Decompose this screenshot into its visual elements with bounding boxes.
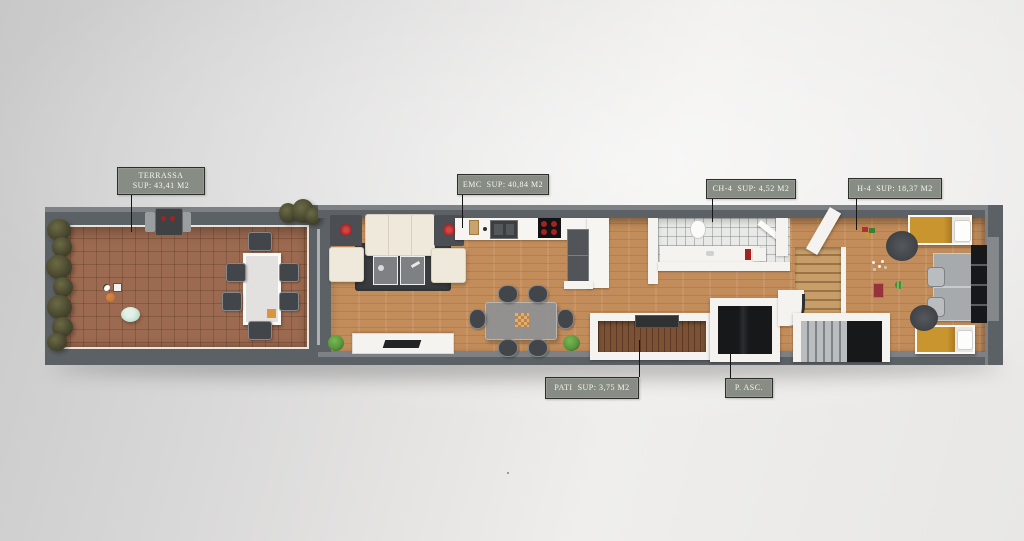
outdoor-chair xyxy=(248,232,272,251)
label-ch4-text: CH-4 SUP: 4,52 M2 xyxy=(713,184,790,194)
outdoor-chair xyxy=(248,321,272,340)
bathroom-appliance xyxy=(753,248,766,261)
induction-cooktop xyxy=(538,218,561,238)
label-terrassa-name: TERRASSA xyxy=(139,171,184,181)
bbq-side-shelf xyxy=(145,212,155,232)
sink-basin xyxy=(506,224,514,235)
hedge-plant xyxy=(53,277,73,297)
tv-set xyxy=(383,340,422,348)
hedge-plant xyxy=(46,255,72,279)
hedge-plant xyxy=(52,237,72,257)
toy-chest xyxy=(873,283,884,298)
label-pati-text: PATI SUP: 3,75 M2 xyxy=(554,383,629,393)
dining-chair xyxy=(498,285,518,303)
shelf-slit xyxy=(971,304,987,306)
label-h4-text: H-4 SUP: 18,37 M2 xyxy=(857,184,932,194)
round-rug xyxy=(910,305,938,331)
bedroom-partition-wall xyxy=(776,218,788,256)
label-h4: H-4 SUP: 18,37 M2 xyxy=(848,178,942,199)
dining-chair xyxy=(498,339,518,357)
bed-top xyxy=(908,215,972,245)
leader-line-ch4 xyxy=(712,196,713,222)
leader-line-pati xyxy=(639,340,640,377)
basketball xyxy=(106,293,115,302)
coffee-table-dish xyxy=(378,265,384,271)
stairs-down xyxy=(801,321,847,362)
round-rug xyxy=(886,231,918,261)
toy-piece xyxy=(881,260,884,263)
toilet xyxy=(690,220,706,239)
label-ch4: CH-4 SUP: 4,52 M2 xyxy=(706,179,796,199)
coffee-table-remote xyxy=(411,261,420,268)
desk-chair xyxy=(927,267,945,287)
dining-chair xyxy=(557,309,574,329)
toy-piece xyxy=(872,261,875,264)
label-terrassa: TERRASSA SUP: 43,41 M2 xyxy=(117,167,205,195)
right-wall-inset xyxy=(987,237,999,321)
coffee-table xyxy=(400,256,425,285)
ac-unit xyxy=(635,315,679,328)
bed-pillow xyxy=(954,220,971,242)
dining-chair xyxy=(528,339,548,357)
leader-line-emc xyxy=(462,192,463,228)
leader-line-terrassa xyxy=(131,192,132,232)
stair-void xyxy=(847,321,882,362)
toy-piece xyxy=(878,265,881,268)
outdoor-chair xyxy=(279,292,299,311)
outdoor-chair xyxy=(279,263,299,282)
counter-ledge xyxy=(564,281,593,289)
toy-ball xyxy=(895,281,903,289)
fridge-lower xyxy=(567,255,589,282)
leader-line-h4 xyxy=(856,196,857,230)
sofa-armchair-left xyxy=(329,247,364,282)
side-table-left xyxy=(330,215,362,246)
label-pati: PATI SUP: 3,75 M2 xyxy=(545,377,639,399)
bbq-burner xyxy=(161,216,166,221)
hall-partition-wall xyxy=(648,218,658,284)
red-flower-bowl xyxy=(340,224,352,236)
cutting-board xyxy=(469,220,479,235)
label-pasc: P. ASC. xyxy=(725,378,773,398)
cooktop-burner xyxy=(541,221,547,227)
outdoor-dining-table xyxy=(243,253,281,325)
sofa-three-seat xyxy=(365,214,435,256)
table-centerpiece xyxy=(515,313,529,327)
dining-chair xyxy=(528,285,548,303)
apartment-floor-plan xyxy=(45,205,1003,365)
sofa-cushion-seam xyxy=(388,215,389,255)
fridge-upper xyxy=(567,229,589,256)
hedge-plant xyxy=(47,333,67,351)
leader-line-pasc xyxy=(730,352,731,378)
cooktop-burner xyxy=(541,229,547,235)
red-towel xyxy=(745,249,751,260)
bathroom-bottom-wall xyxy=(658,262,790,271)
soccer-ball xyxy=(103,284,110,291)
label-emc-text: EMC SUP: 40,84 M2 xyxy=(463,180,543,190)
toy-piece xyxy=(884,266,887,269)
label-emc: EMC SUP: 40,84 M2 xyxy=(457,174,549,195)
coffee-table xyxy=(373,256,398,285)
toy-block xyxy=(862,227,868,232)
shelf-slit xyxy=(971,264,987,266)
toy-cube xyxy=(113,283,122,292)
sofa-armchair-right xyxy=(431,248,466,283)
kitchen-counter-return xyxy=(587,218,609,288)
cooktop-burner xyxy=(551,221,557,227)
bed-pillow xyxy=(957,330,973,350)
sofa-cushion-seam xyxy=(411,215,412,255)
stairwell-lower xyxy=(793,313,890,362)
bbq-grill xyxy=(145,208,191,234)
bbq-burner xyxy=(170,216,175,221)
red-flower-bowl xyxy=(443,224,455,236)
shelf-slit xyxy=(971,284,987,286)
elevator-shaft xyxy=(718,306,772,354)
bbq-body xyxy=(155,208,183,236)
label-pasc-text: P. ASC. xyxy=(735,383,763,393)
floor-plan-scene: TERRASSA SUP: 43,41 M2 EMC SUP: 40,84 M2… xyxy=(0,0,1024,541)
table-napkin xyxy=(267,309,276,318)
outdoor-chair xyxy=(222,292,242,311)
sliding-door-glass xyxy=(317,229,320,345)
elevator-enclosure xyxy=(710,298,780,362)
cooktop-burner xyxy=(551,229,557,235)
toy-piece xyxy=(873,268,876,271)
toy-block xyxy=(869,228,875,233)
kitchen-bowl xyxy=(483,227,487,231)
speck-artifact xyxy=(507,472,509,474)
hedge-plant xyxy=(47,295,72,319)
kitchen-sink xyxy=(490,220,518,239)
dining-chair xyxy=(469,309,486,329)
kiddie-pool xyxy=(121,307,140,322)
sink-basin xyxy=(494,224,503,235)
toy-block xyxy=(865,233,869,237)
wall-shelving xyxy=(971,245,987,323)
potted-plant xyxy=(328,335,344,351)
dining-table xyxy=(485,302,557,340)
vanity-sink xyxy=(706,251,714,256)
outdoor-chair xyxy=(226,263,246,282)
label-terrassa-area: SUP: 43,41 M2 xyxy=(133,181,190,191)
potted-plant xyxy=(563,335,580,351)
tv-sideboard xyxy=(352,333,454,354)
